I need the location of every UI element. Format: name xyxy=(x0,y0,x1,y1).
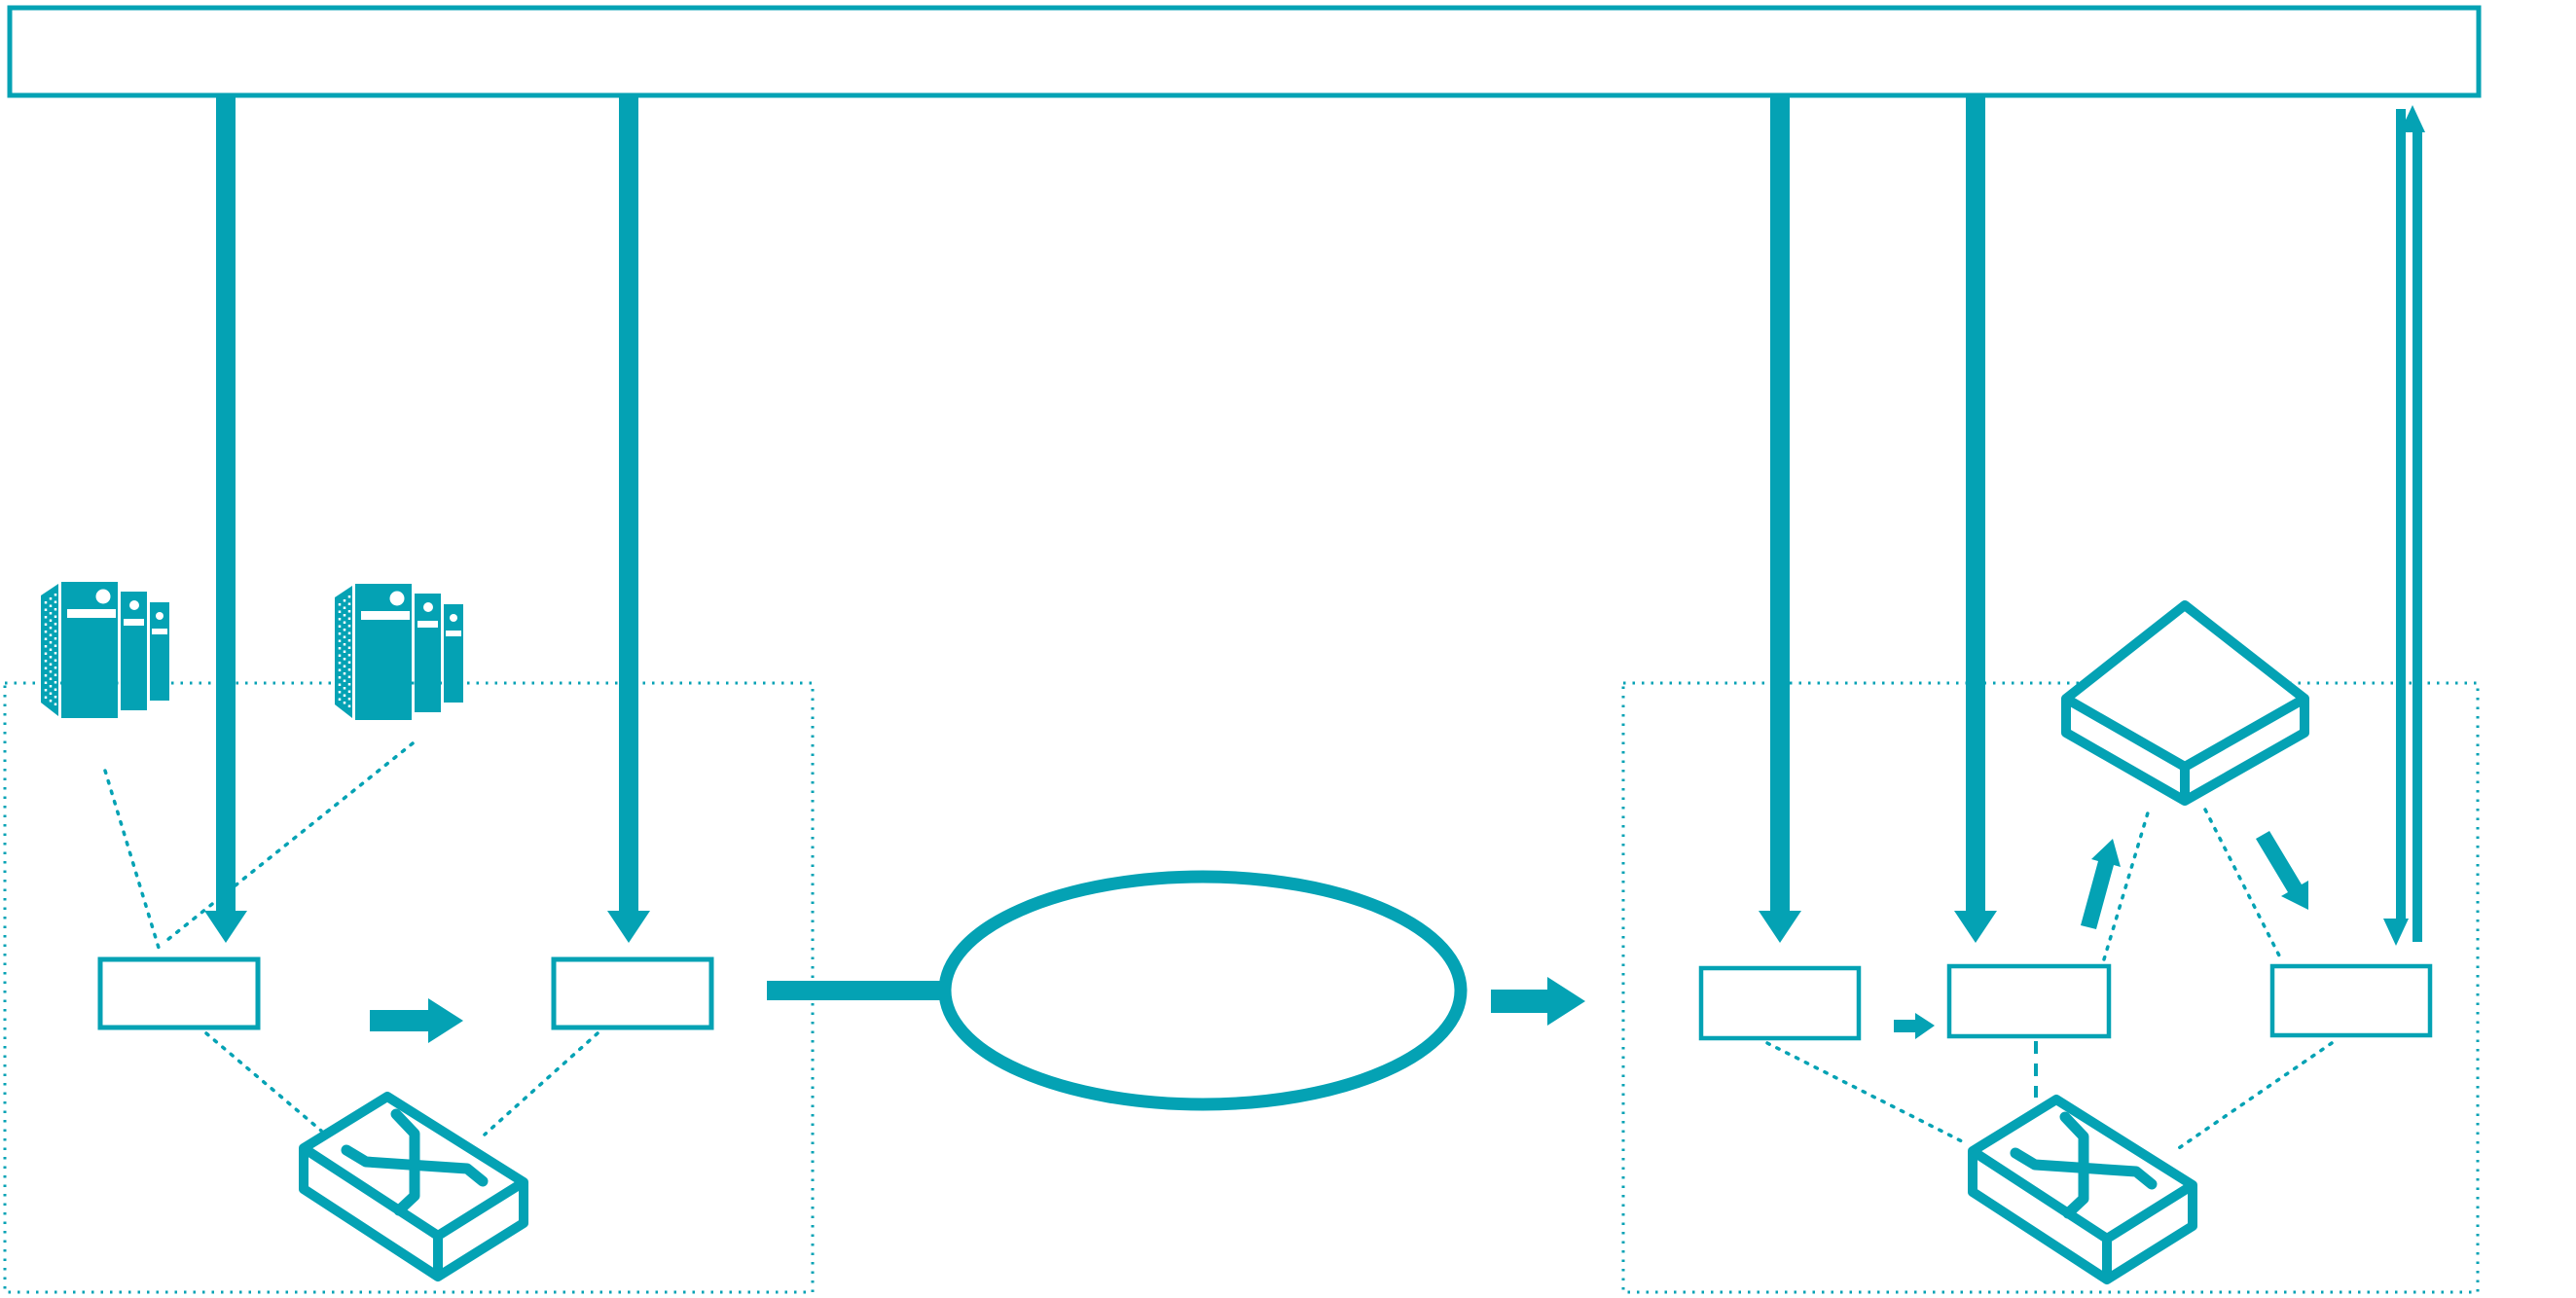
server-stack-icon xyxy=(335,584,463,720)
switch-icon xyxy=(1973,1100,2193,1280)
link-box2-switch xyxy=(485,1033,598,1135)
link-server2-box xyxy=(163,743,413,944)
link-box1-switch xyxy=(206,1033,321,1131)
switch-icon xyxy=(304,1097,524,1277)
right-box-2 xyxy=(1949,966,2109,1036)
link-rbox3-switch xyxy=(2173,1043,2332,1152)
right-boxes-arrow xyxy=(1894,1013,1935,1039)
cloud-to-site-arrow xyxy=(1491,977,1585,1026)
top-banner xyxy=(10,8,2479,95)
down-arrow-4 xyxy=(1954,95,1997,943)
down-arrow-1 xyxy=(204,95,247,943)
server-stack-icon xyxy=(41,582,169,718)
link-rbox1-switch xyxy=(1767,1043,1968,1144)
left-box-2 xyxy=(554,959,711,1028)
down-arrow-2 xyxy=(607,95,650,943)
right-box-3 xyxy=(2272,966,2430,1035)
flat-hub-icon xyxy=(2066,605,2304,801)
wan-ellipse xyxy=(945,877,1461,1104)
diagram-stage xyxy=(0,0,2576,1298)
left-box-1 xyxy=(100,959,258,1028)
link-rbox2-hub xyxy=(2104,810,2149,959)
down-line-arrow xyxy=(2383,109,2409,946)
network-diagram xyxy=(0,0,2576,1298)
link-server1-box xyxy=(105,771,159,948)
down-arrow-3 xyxy=(1759,95,1801,943)
left-boxes-arrow xyxy=(370,998,463,1043)
wan-connector-line xyxy=(767,981,948,1000)
right-box-1 xyxy=(1701,968,1859,1038)
down-transfer-arrow xyxy=(2256,831,2308,910)
up-transfer-arrow xyxy=(2081,839,2121,929)
